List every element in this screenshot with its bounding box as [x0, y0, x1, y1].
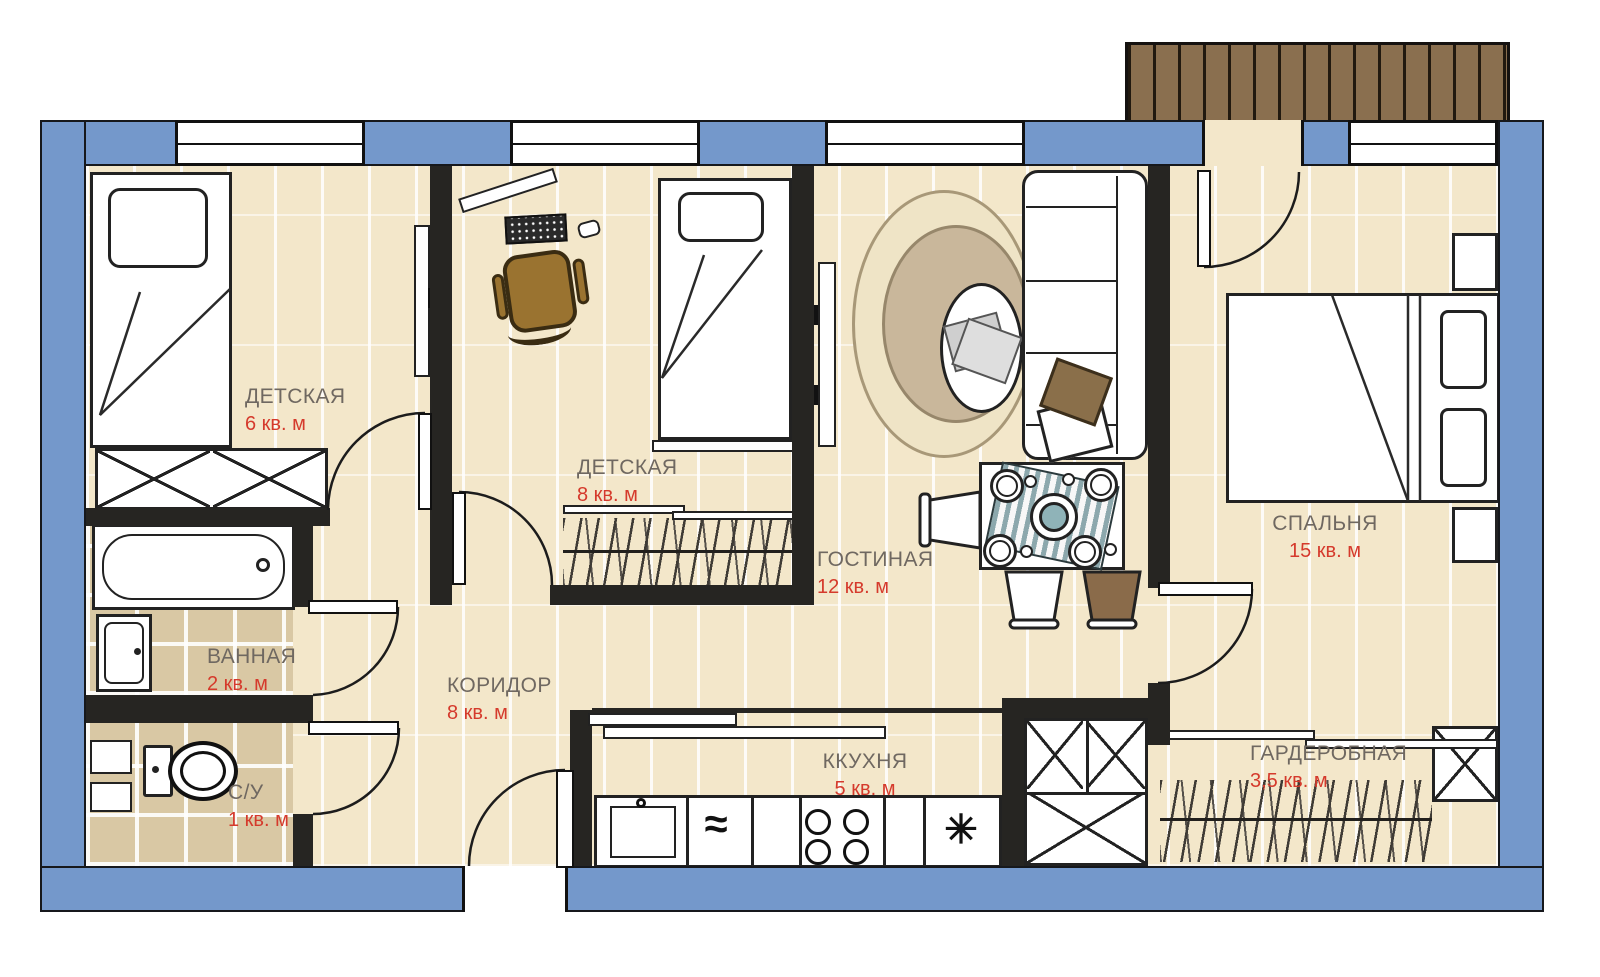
burner-1 — [805, 809, 831, 835]
pillow-children1 — [108, 188, 208, 268]
cup-1 — [1024, 475, 1037, 488]
dresser-x-right — [213, 451, 325, 507]
wardrobe-slider-left — [1152, 730, 1315, 740]
plate-1-ring — [996, 475, 1018, 497]
wardrobe-children2-rail — [563, 550, 795, 553]
label-bedroom: СПАЛЬНЯ 15 кв. м — [1240, 512, 1410, 562]
kitchen-slider-right — [603, 726, 886, 739]
office-chair — [489, 244, 597, 354]
room-area: 15 кв. м — [1240, 540, 1410, 562]
label-kitchen: ККУХНЯ 5 кв. м — [790, 750, 940, 800]
dishwasher-icon: ≈ — [686, 800, 746, 848]
bedroom-pillow-1 — [1440, 310, 1487, 389]
window-living-room — [825, 120, 1025, 166]
burner-3 — [805, 839, 831, 865]
plate-3-ring — [989, 540, 1011, 562]
wc-shelf-2 — [90, 782, 132, 812]
wc-shelf-1 — [90, 740, 132, 774]
window-children1 — [175, 120, 365, 166]
plate-4-ring — [1074, 541, 1096, 563]
label-corridor: КОРИДОР 8 кв. м — [447, 674, 552, 724]
fridge-icon: ✳ — [926, 807, 996, 853]
wall-children1-east — [430, 166, 452, 605]
room-name: ГАРДЕРОБНАЯ — [1250, 742, 1407, 765]
room-name: ВАННАЯ — [207, 645, 296, 668]
cup-3 — [1020, 545, 1033, 558]
room-area: 8 кв. м — [577, 484, 677, 506]
wall-living-bedroom-lower — [1148, 683, 1170, 745]
wardrobe-children2-top-right — [672, 511, 795, 520]
label-children-room-2: ДЕТСКАЯ 8 кв. м — [577, 456, 677, 506]
toilet-bowl-inner — [180, 751, 226, 791]
label-bathroom: ВАННАЯ 2 кв. м — [207, 645, 296, 695]
sofa-arm-top-line — [1026, 206, 1118, 208]
label-wc: С/У 1 кв. м — [228, 781, 289, 831]
outer-wall-right — [1498, 120, 1544, 912]
keyboard-icon — [504, 213, 567, 244]
nightstand-bottom — [1452, 507, 1498, 563]
label-living-room: ГОСТИНАЯ 12 кв. м — [817, 548, 933, 598]
door-leaf-bedroom — [1158, 582, 1253, 596]
plate-2-ring — [1090, 474, 1112, 496]
wall-bath-east-upper — [293, 526, 313, 607]
label-children-room-1: ДЕТСКАЯ 6 кв. м — [245, 385, 345, 435]
bathtub-drain — [256, 558, 270, 572]
room-area: 5 кв. м — [790, 778, 940, 800]
outer-wall-left — [40, 120, 86, 912]
wall-children1-south — [86, 508, 330, 526]
wardrobe-clothes — [1160, 780, 1432, 862]
serving-bowl — [1039, 502, 1069, 532]
burner-4 — [843, 839, 869, 865]
room-name: СПАЛЬНЯ — [1240, 512, 1410, 535]
sofa-back-line — [1116, 176, 1118, 454]
cabinet-x-3 — [1027, 792, 1145, 863]
wall-living-bedroom-upper — [1148, 166, 1170, 588]
room-name: С/У — [228, 781, 289, 804]
nightstand-top — [1452, 233, 1498, 291]
washing-machine-knob — [134, 648, 141, 655]
bed-children2-footboard — [652, 440, 798, 452]
room-area: 2 кв. м — [207, 673, 296, 695]
window-children2 — [510, 120, 700, 166]
wall-bath-wc-divider — [86, 695, 313, 723]
cabinet-x-1 — [1027, 721, 1083, 789]
room-name: ДЕТСКАЯ — [577, 456, 677, 479]
room-name: ДЕТСКАЯ — [245, 385, 345, 408]
door-leaf-entrance — [556, 770, 574, 868]
cup-4 — [1104, 543, 1117, 556]
sofa-cushion-line-2 — [1026, 352, 1118, 354]
room-name: ГОСТИНАЯ — [817, 548, 933, 571]
wall-children2-south — [550, 585, 814, 605]
cup-2 — [1062, 473, 1075, 486]
tv-living-room — [818, 262, 836, 447]
wall-children2-east — [792, 166, 814, 605]
cabinet-x-2 — [1086, 721, 1145, 789]
kitchen-sink — [610, 806, 676, 858]
toilet-tank-button — [152, 766, 159, 773]
door-leaf-children1 — [418, 413, 432, 510]
room-area: 1 кв. м — [228, 809, 289, 831]
wall-kitchen-east — [1002, 698, 1024, 866]
door-leaf-bathroom — [308, 600, 398, 614]
room-name: КОРИДОР — [447, 674, 552, 697]
window-bedroom — [1348, 120, 1498, 166]
kitchen-slider-left — [588, 713, 737, 726]
room-area: 3,5 кв. м — [1250, 770, 1407, 792]
room-name: ККУХНЯ — [790, 750, 940, 773]
floor-plan: ≈ ✳ — [0, 0, 1600, 977]
outer-wall-bottom — [40, 866, 1544, 912]
room-area: 8 кв. м — [447, 702, 552, 724]
wardrobe-rail — [1160, 818, 1432, 821]
dresser-x-left — [98, 451, 210, 507]
door-leaf-balcony — [1197, 170, 1211, 267]
kitchen-faucet — [636, 798, 646, 808]
room-area: 12 кв. м — [817, 576, 933, 598]
burner-2 — [843, 809, 869, 835]
entrance-opening — [462, 866, 568, 912]
balcony-door-opening — [1202, 120, 1304, 166]
wardrobe-children2-top-left — [563, 505, 685, 514]
balcony-deck — [1125, 42, 1510, 126]
room-area: 6 кв. м — [245, 413, 345, 435]
wall-wc-east-lower — [293, 814, 313, 866]
door-leaf-children2 — [452, 492, 466, 585]
door-leaf-wc — [308, 721, 399, 735]
sofa-cushion-line-1 — [1026, 280, 1118, 282]
label-wardrobe-room: ГАРДЕРОБНАЯ 3,5 кв. м — [1250, 742, 1407, 792]
pillow-children2 — [678, 192, 764, 242]
wall-hall-north — [1002, 698, 1148, 718]
bedroom-pillow-2 — [1440, 408, 1487, 487]
